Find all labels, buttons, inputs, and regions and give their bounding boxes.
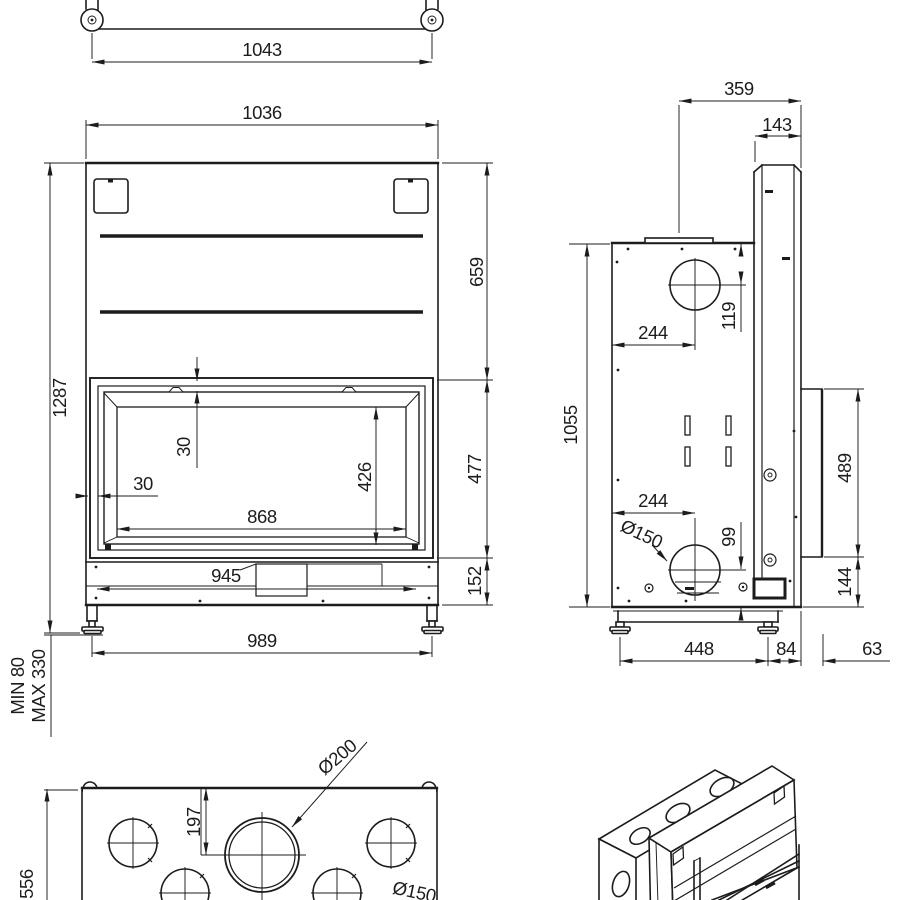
dim-frame-top: 30 xyxy=(173,437,194,457)
firebox-door xyxy=(90,378,433,558)
foot-left xyxy=(81,9,103,31)
dim-top-outlet-y: 119 xyxy=(718,302,739,330)
view-isometric xyxy=(599,766,799,900)
mounting-rail xyxy=(801,389,822,557)
dim-leg-min: MIN 80 xyxy=(7,657,28,714)
view-feet-detail: 1043 xyxy=(81,0,443,62)
foot-right xyxy=(421,9,443,31)
leg-left xyxy=(82,605,103,634)
dim-foot-to-back: 84 xyxy=(776,638,796,659)
leg-right xyxy=(422,605,443,634)
screws xyxy=(645,469,776,592)
door-clip-left xyxy=(169,388,183,393)
dim-bottom-outlet-y: 99 xyxy=(718,527,739,547)
dim-frame-side: 30 xyxy=(133,473,153,494)
wall-bracket-right xyxy=(394,179,428,213)
view-side: 359 143 119 244 244 Ø150 99 489 144 1055 xyxy=(560,78,890,666)
rear-connection-box xyxy=(754,579,785,598)
dim-bracket-bottom: 144 xyxy=(834,567,855,597)
dim-flue-depth: 359 xyxy=(724,78,754,99)
dim-flue-offset: 197 xyxy=(183,807,204,837)
view-top: 197 Ø200 Ø150 556 xyxy=(16,735,438,900)
dim-glass-height: 426 xyxy=(354,462,375,492)
dim-back-gap: 63 xyxy=(862,638,882,659)
dim-side-feet-spacing: 448 xyxy=(684,638,714,659)
dim-glass-width: 868 xyxy=(247,506,277,527)
dim-base-height: 152 xyxy=(464,566,485,596)
dim-outlet-diameter-side: Ø150 xyxy=(617,515,666,553)
dim-duct-depth: 143 xyxy=(762,114,792,135)
drawing-canvas: 1043 xyxy=(0,0,900,900)
dim-leg-max: MAX 330 xyxy=(28,649,49,722)
dim-bottom-outlet-x: 244 xyxy=(638,490,668,511)
dim-top-depth: 556 xyxy=(16,869,37,899)
base-band xyxy=(86,562,438,605)
rear-duct xyxy=(754,165,801,607)
side-base xyxy=(610,611,783,634)
dim-door-height: 477 xyxy=(464,454,485,484)
dim-feet-spacing: 1043 xyxy=(242,39,282,60)
damper-box xyxy=(256,564,307,596)
technical-drawing-page: 1043 xyxy=(0,0,900,900)
dim-front-width: 1036 xyxy=(242,102,282,123)
dim-total-height: 1287 xyxy=(49,378,70,418)
bottom-outlet-hole xyxy=(668,541,746,601)
door-clip-right xyxy=(342,388,356,393)
dim-bracket-height: 489 xyxy=(834,453,855,483)
view-front: 1036 659 477 152 1287 30 30 868 426 945 … xyxy=(7,102,493,737)
dim-base-width: 945 xyxy=(211,565,241,586)
dim-side-height: 1055 xyxy=(560,405,581,445)
dim-feet-spacing-front: 989 xyxy=(247,630,277,651)
flue-collar xyxy=(645,238,713,243)
vent-slots xyxy=(685,416,731,466)
dim-top-outlet-x: 244 xyxy=(638,322,668,343)
dim-front-upper-height: 659 xyxy=(466,257,487,287)
wall-bracket-left xyxy=(94,179,128,213)
